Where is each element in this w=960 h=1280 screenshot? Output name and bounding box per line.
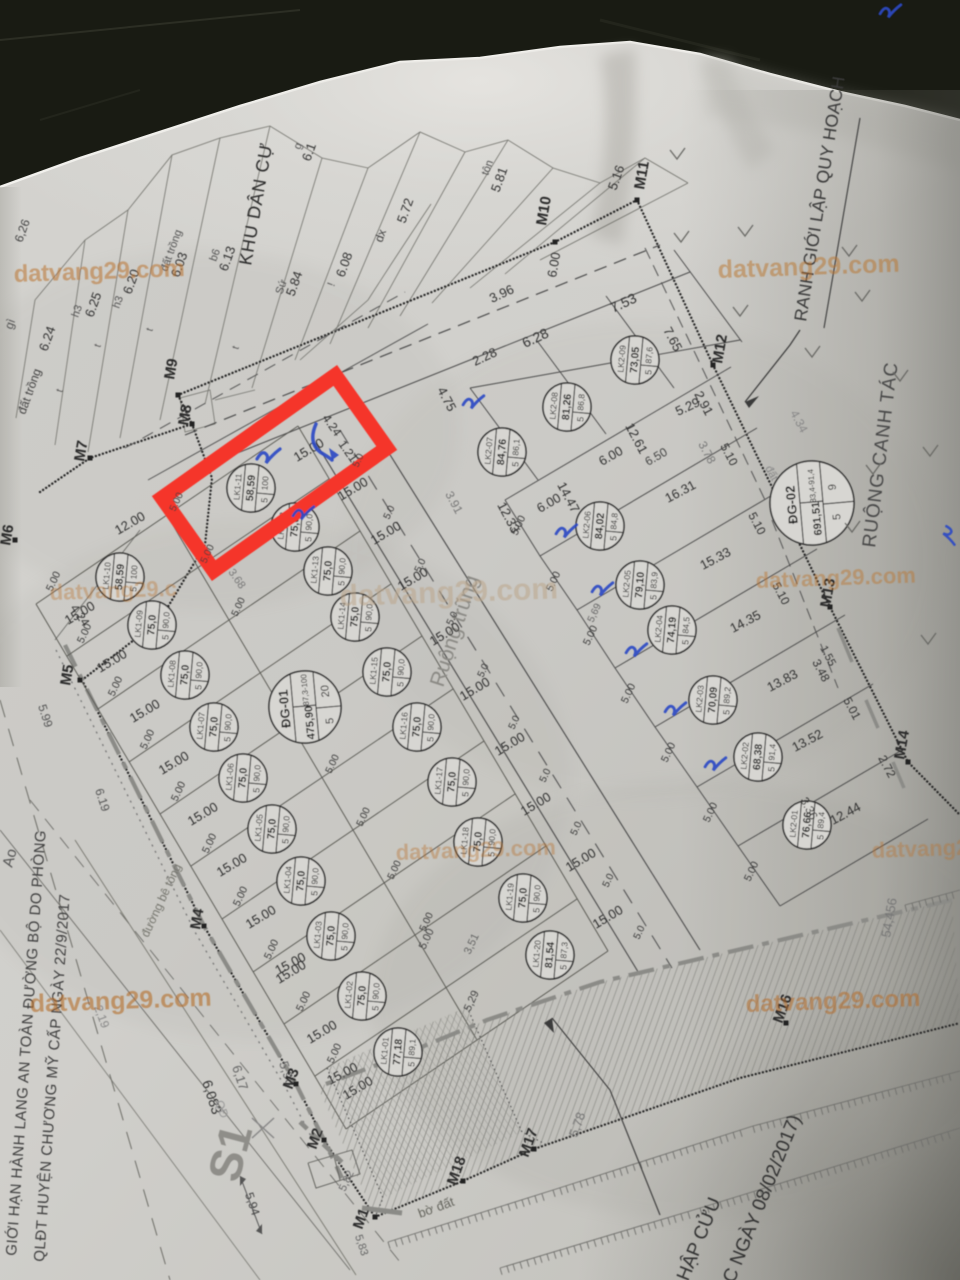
svg-text:5: 5 — [222, 736, 232, 742]
svg-text:84,5: 84,5 — [680, 616, 691, 634]
svg-text:86,1: 86,1 — [510, 438, 521, 456]
svg-text:75,0: 75,0 — [321, 560, 335, 582]
svg-text:81,26: 81,26 — [560, 393, 574, 420]
svg-text:75,0: 75,0 — [294, 870, 308, 892]
svg-text:5: 5 — [680, 639, 690, 645]
svg-text:90,0: 90,0 — [460, 768, 471, 786]
svg-text:79,10: 79,10 — [633, 571, 647, 598]
svg-text:90,0: 90,0 — [193, 661, 204, 679]
svg-text:75,0: 75,0 — [410, 716, 424, 738]
svg-text:5: 5 — [280, 838, 290, 844]
svg-text:77,18: 77,18 — [391, 1038, 405, 1065]
svg-text:90,0: 90,0 — [251, 764, 262, 782]
svg-text:84,76: 84,76 — [495, 438, 509, 465]
svg-text:75,0: 75,0 — [380, 661, 394, 683]
svg-text:5: 5 — [259, 497, 269, 503]
svg-text:datvang29.com: datvang29.com — [871, 832, 960, 863]
svg-text:75,0: 75,0 — [516, 887, 530, 909]
svg-text:75,0: 75,0 — [265, 818, 279, 840]
svg-text:5: 5 — [575, 416, 585, 422]
svg-text:5: 5 — [721, 709, 731, 715]
svg-text:75,0: 75,0 — [324, 925, 338, 947]
svg-text:20: 20 — [319, 685, 332, 698]
svg-text:83,9: 83,9 — [648, 571, 659, 589]
svg-text:68,38: 68,38 — [751, 743, 765, 770]
svg-text:90,0: 90,0 — [309, 867, 320, 885]
svg-text:5: 5 — [766, 766, 776, 772]
svg-text:M7: M7 — [71, 439, 91, 462]
svg-text:5: 5 — [363, 626, 373, 632]
svg-text:86,8: 86,8 — [575, 393, 586, 411]
svg-text:M8: M8 — [175, 403, 195, 426]
svg-text:5: 5 — [815, 834, 825, 840]
svg-text:75,0: 75,0 — [145, 614, 159, 636]
svg-text:5: 5 — [648, 594, 658, 600]
svg-text:datvang29.c: datvang29.c — [49, 576, 177, 605]
svg-text:100: 100 — [259, 475, 270, 490]
svg-text:75,0: 75,0 — [207, 716, 221, 738]
svg-text:5: 5 — [643, 369, 653, 375]
svg-text:90,0: 90,0 — [370, 982, 381, 1000]
svg-text:70,09: 70,09 — [706, 686, 720, 713]
svg-text:5: 5 — [531, 907, 541, 913]
svg-text:90,0: 90,0 — [425, 713, 436, 731]
svg-text:5: 5 — [831, 513, 843, 520]
svg-text:74,19: 74,19 — [665, 616, 679, 643]
svg-text:5: 5 — [309, 890, 319, 896]
svg-text:90,0: 90,0 — [160, 611, 171, 629]
svg-text:89,2: 89,2 — [721, 686, 732, 704]
svg-text:73,05: 73,05 — [628, 346, 642, 373]
svg-text:87,3: 87,3 — [558, 941, 569, 959]
svg-text:81,54: 81,54 — [543, 941, 557, 968]
svg-text:M9: M9 — [161, 357, 181, 380]
svg-text:75,0: 75,0 — [445, 771, 459, 793]
svg-text:91,4: 91,4 — [766, 743, 777, 761]
svg-text:M5: M5 — [57, 663, 77, 686]
svg-text:5: 5 — [339, 945, 349, 951]
svg-text:5: 5 — [370, 1005, 380, 1011]
svg-text:90,0: 90,0 — [339, 922, 350, 940]
svg-text:5: 5 — [303, 536, 313, 542]
svg-text:90,0: 90,0 — [222, 713, 233, 731]
svg-text:5: 5 — [395, 681, 405, 687]
svg-text:84,02: 84,02 — [593, 512, 607, 539]
svg-text:75,0: 75,0 — [178, 664, 192, 686]
svg-text:9: 9 — [826, 484, 838, 491]
svg-text:75,0: 75,0 — [236, 767, 250, 789]
svg-text:5: 5 — [460, 791, 470, 797]
svg-text:89,1: 89,1 — [406, 1038, 417, 1056]
svg-text:5: 5 — [160, 634, 170, 640]
svg-text:5: 5 — [251, 787, 261, 793]
svg-text:58,59: 58,59 — [244, 474, 258, 501]
svg-text:90,0: 90,0 — [395, 658, 406, 676]
svg-text:5: 5 — [406, 1061, 416, 1067]
svg-text:5: 5 — [324, 717, 336, 724]
svg-text:84,8: 84,8 — [608, 512, 619, 530]
svg-text:5: 5 — [193, 684, 203, 690]
svg-text:90,0: 90,0 — [336, 557, 347, 575]
svg-text:5: 5 — [608, 535, 618, 541]
svg-text:90,0: 90,0 — [280, 815, 291, 833]
svg-text:5: 5 — [510, 461, 520, 467]
svg-text:75,0: 75,0 — [355, 985, 369, 1007]
svg-text:5: 5 — [425, 736, 435, 742]
svg-text:87,6: 87,6 — [643, 346, 654, 364]
svg-text:90,0: 90,0 — [531, 884, 542, 902]
svg-text:5: 5 — [558, 964, 568, 970]
